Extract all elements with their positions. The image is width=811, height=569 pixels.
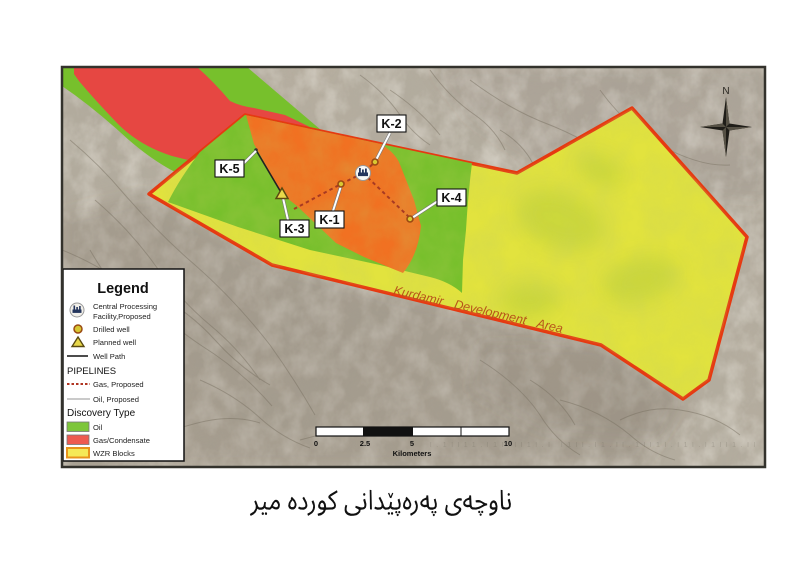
svg-text:Facility,Proposed: Facility,Proposed xyxy=(93,312,151,321)
svg-text:Gas, Proposed: Gas, Proposed xyxy=(93,380,144,389)
svg-text:Drilled well: Drilled well xyxy=(93,325,130,334)
svg-text:Oil, Proposed: Oil, Proposed xyxy=(93,395,139,404)
svg-text:Well Path: Well Path xyxy=(93,352,125,361)
svg-text:5: 5 xyxy=(410,439,414,448)
svg-text:Legend: Legend xyxy=(97,281,149,297)
svg-text:0: 0 xyxy=(314,439,318,448)
svg-text:Planned well: Planned well xyxy=(93,338,136,347)
svg-text:PIPELINES: PIPELINES xyxy=(67,366,116,377)
svg-text:K-1: K-1 xyxy=(319,213,339,227)
svg-text:Central Processing: Central Processing xyxy=(93,302,157,311)
svg-text:K-4: K-4 xyxy=(441,191,461,205)
svg-text:Discovery Type: Discovery Type xyxy=(67,408,136,419)
svg-text:K-5: K-5 xyxy=(219,162,239,176)
svg-text:N: N xyxy=(722,86,729,97)
svg-text:Kilometers: Kilometers xyxy=(393,449,432,458)
svg-text:K-3: K-3 xyxy=(284,222,304,236)
svg-text:Gas/Condensate: Gas/Condensate xyxy=(93,436,150,445)
svg-text:2.5: 2.5 xyxy=(360,439,370,448)
svg-text:Oil: Oil xyxy=(93,423,103,432)
svg-text:WZR Blocks: WZR Blocks xyxy=(93,449,135,458)
svg-text:K-2: K-2 xyxy=(381,117,401,131)
